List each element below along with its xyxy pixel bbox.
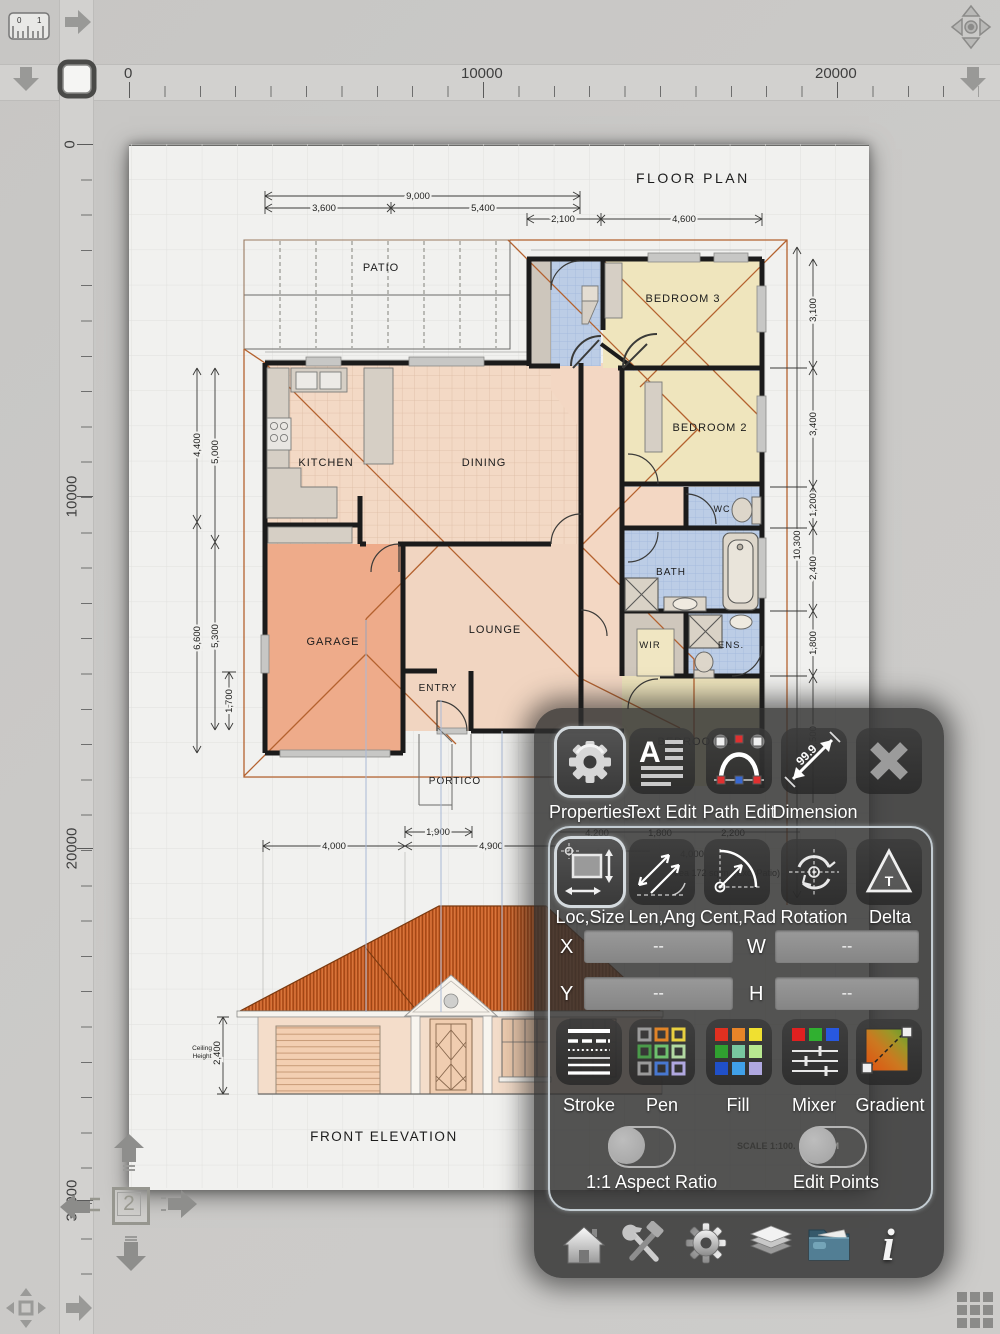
- svg-text:3,100: 3,100: [808, 298, 819, 322]
- svg-text:1: 1: [37, 16, 42, 25]
- svg-text:1,200: 1,200: [808, 493, 819, 517]
- svg-text:KITCHEN: KITCHEN: [298, 457, 353, 469]
- svg-text:BEDROOM 3: BEDROOM 3: [645, 293, 720, 305]
- svg-text:FLOOR PLAN: FLOOR PLAN: [636, 170, 750, 186]
- svg-text:PATIO: PATIO: [363, 262, 399, 274]
- svg-text:0: 0: [17, 16, 22, 25]
- svg-text:BEDROOM 2: BEDROOM 2: [672, 422, 747, 434]
- svg-text:GARAGE: GARAGE: [306, 636, 359, 648]
- svg-text:4,600: 4,600: [672, 214, 696, 225]
- svg-text:BATH: BATH: [656, 567, 686, 578]
- svg-text:2,400: 2,400: [212, 1041, 223, 1065]
- svg-text:ENTRY: ENTRY: [419, 683, 458, 694]
- svg-text:4,000: 4,000: [322, 841, 346, 852]
- svg-text:WC: WC: [714, 504, 731, 514]
- svg-text:5,400: 5,400: [471, 203, 495, 214]
- svg-text:5,000: 5,000: [210, 440, 221, 464]
- svg-text:9,000: 9,000: [406, 191, 430, 202]
- svg-text:Height: Height: [193, 1053, 212, 1060]
- svg-text:2,100: 2,100: [551, 214, 575, 225]
- svg-text:Ceiling: Ceiling: [192, 1045, 212, 1052]
- svg-text:2,400: 2,400: [808, 556, 819, 580]
- svg-text:6,600: 6,600: [192, 626, 203, 650]
- svg-text:FRONT ELEVATION: FRONT ELEVATION: [310, 1129, 458, 1144]
- svg-text:PORTICO: PORTICO: [429, 776, 481, 787]
- svg-text:5,300: 5,300: [210, 624, 221, 648]
- svg-text:DINING: DINING: [462, 457, 507, 469]
- svg-text:LOUNGE: LOUNGE: [469, 624, 521, 636]
- svg-text:WIR: WIR: [639, 640, 660, 651]
- svg-text:3,600: 3,600: [312, 203, 336, 214]
- svg-text:1,900: 1,900: [426, 827, 450, 838]
- svg-text:10,300: 10,300: [792, 530, 803, 559]
- svg-text:4,900: 4,900: [479, 841, 503, 852]
- svg-text:ENS.: ENS.: [718, 640, 744, 651]
- svg-text:T: T: [885, 873, 894, 889]
- svg-text:A: A: [639, 736, 661, 769]
- svg-text:99.9: 99.9: [793, 741, 820, 768]
- svg-text:1,800: 1,800: [808, 631, 819, 655]
- svg-text:3,400: 3,400: [808, 412, 819, 436]
- svg-text:4,400: 4,400: [192, 433, 203, 457]
- svg-text:1,700: 1,700: [224, 689, 235, 713]
